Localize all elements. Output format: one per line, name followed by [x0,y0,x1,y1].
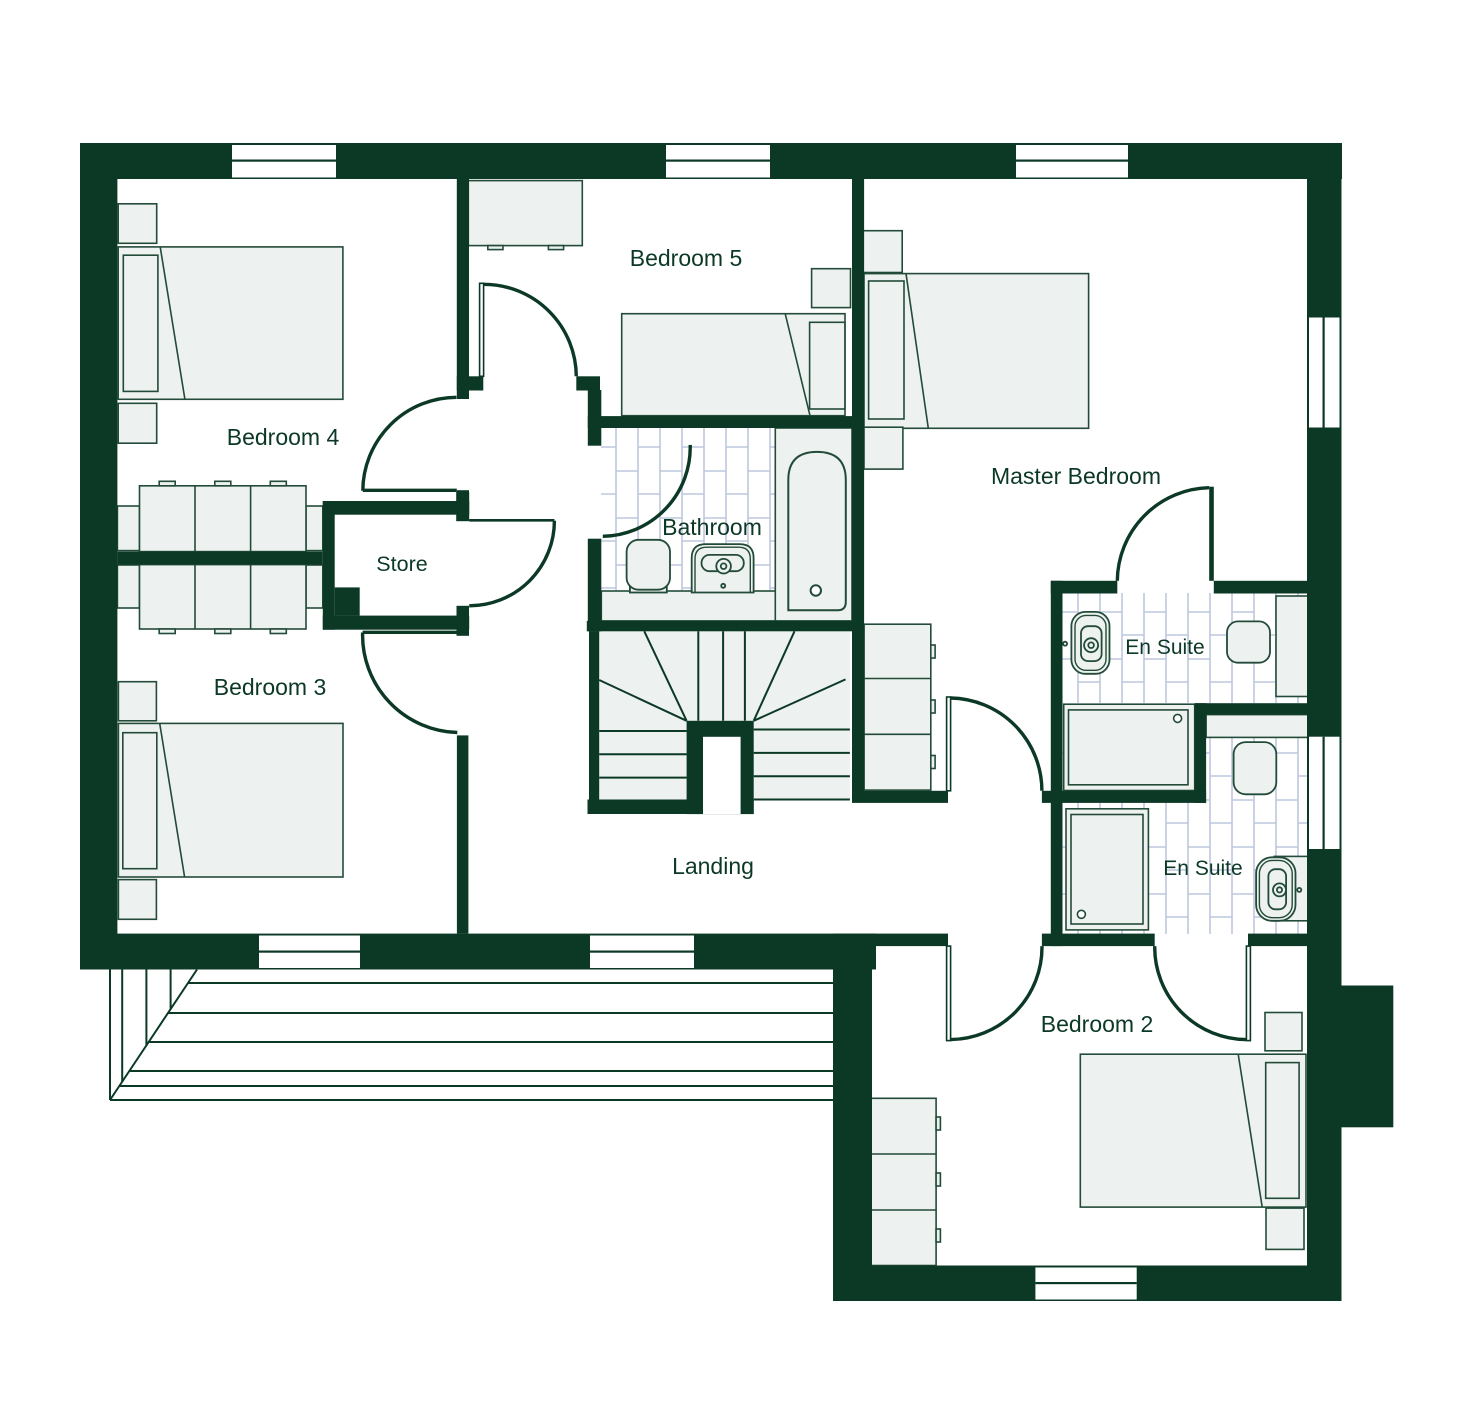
svg-text:Landing: Landing [672,853,754,879]
svg-text:Bathroom: Bathroom [662,514,762,540]
svg-text:Bedroom 4: Bedroom 4 [227,424,340,450]
svg-text:Bedroom 5: Bedroom 5 [630,245,743,271]
svg-text:Master Bedroom: Master Bedroom [991,463,1161,489]
svg-text:En Suite: En Suite [1125,636,1204,659]
svg-text:Bedroom 2: Bedroom 2 [1041,1011,1154,1037]
svg-text:En Suite: En Suite [1163,857,1242,880]
svg-text:Bedroom 3: Bedroom 3 [214,674,327,700]
svg-text:Store: Store [376,552,427,576]
